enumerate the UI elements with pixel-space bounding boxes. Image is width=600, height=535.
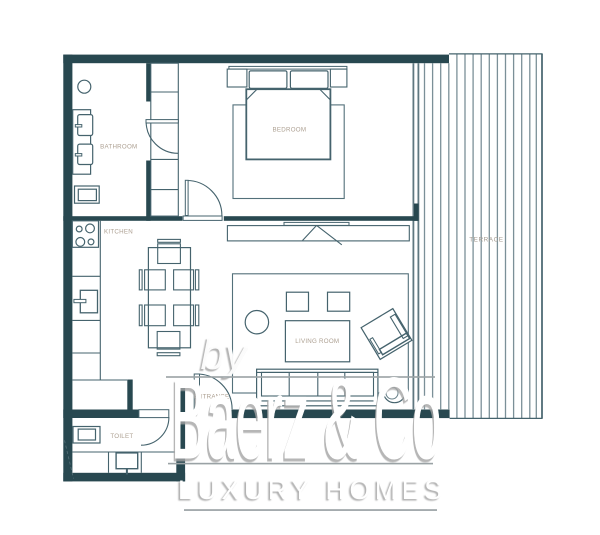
svg-text:TOILET: TOILET: [110, 433, 133, 440]
svg-text:BEDROOM: BEDROOM: [273, 126, 307, 133]
svg-text:KITCHEN: KITCHEN: [104, 229, 133, 236]
svg-text:BATHROOM: BATHROOM: [100, 144, 137, 151]
svg-text:LIVING ROOM: LIVING ROOM: [295, 338, 339, 345]
svg-text:TERRACE: TERRACE: [469, 237, 503, 244]
svg-text:LUXURY HOMES: LUXURY HOMES: [178, 475, 447, 505]
